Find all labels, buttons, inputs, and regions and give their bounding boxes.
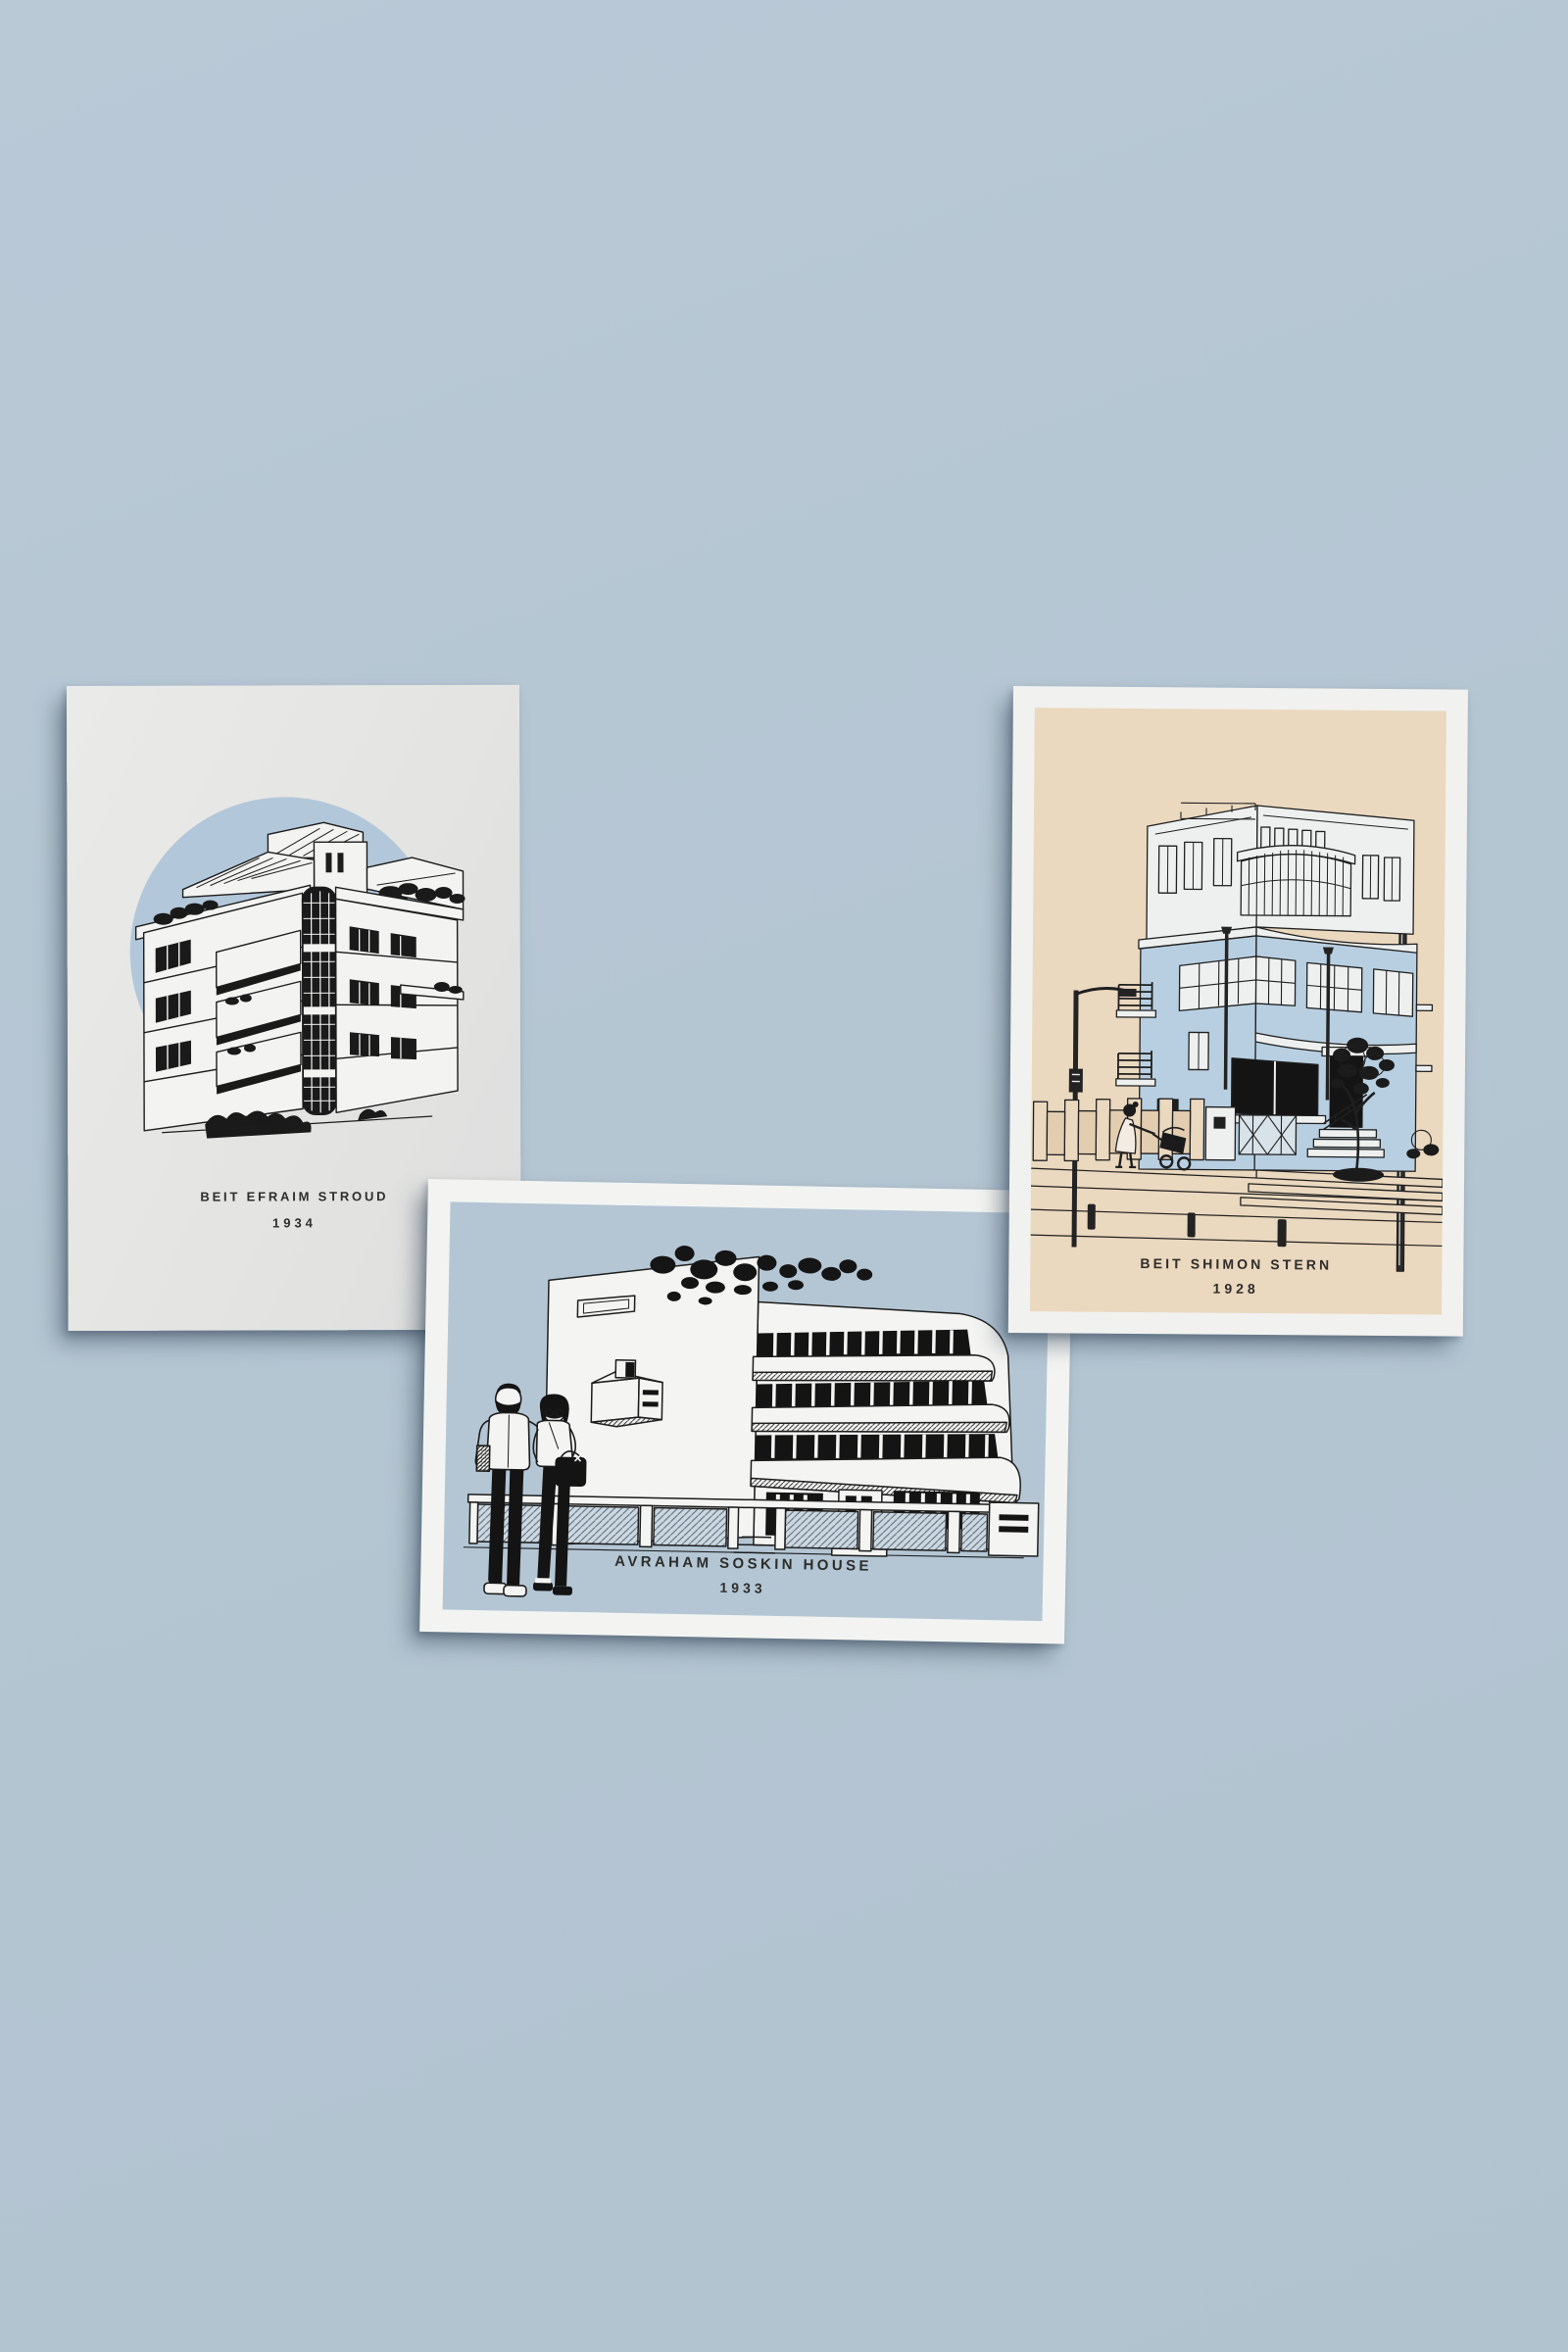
mail-pillar: [989, 1502, 1039, 1556]
print-avraham-soskin-house: AVRAHAM SOSKIN HOUSE 1933: [419, 1179, 1073, 1644]
print-panel: AVRAHAM SOSKIN HOUSE 1933: [443, 1201, 1051, 1621]
curved-bay-window: [1237, 845, 1355, 915]
corner-windows: [1179, 955, 1295, 1011]
tattoo-sleeve: [476, 1445, 489, 1471]
left-facade-windows: [156, 940, 191, 1072]
wall-plaque: [1213, 1117, 1225, 1129]
lattice-fence: [1239, 1115, 1296, 1154]
print-title: BEIT SHIMON STERN: [1030, 1254, 1442, 1273]
stair-tower: [303, 887, 337, 1114]
print-year: 1928: [1030, 1279, 1442, 1298]
caption-beit-shimon-stern: BEIT SHIMON STERN 1928: [1030, 1254, 1442, 1298]
corner-building-drawing: [1030, 802, 1445, 1271]
beit-shimon-stern-illustration: [1030, 708, 1446, 1314]
balconies-left: [217, 930, 301, 1094]
bollards: [1088, 1204, 1287, 1248]
print-beit-shimon-stern: BEIT SHIMON STERN 1928: [1008, 686, 1468, 1337]
print-panel: BEIT SHIMON STERN 1928: [1030, 708, 1446, 1314]
